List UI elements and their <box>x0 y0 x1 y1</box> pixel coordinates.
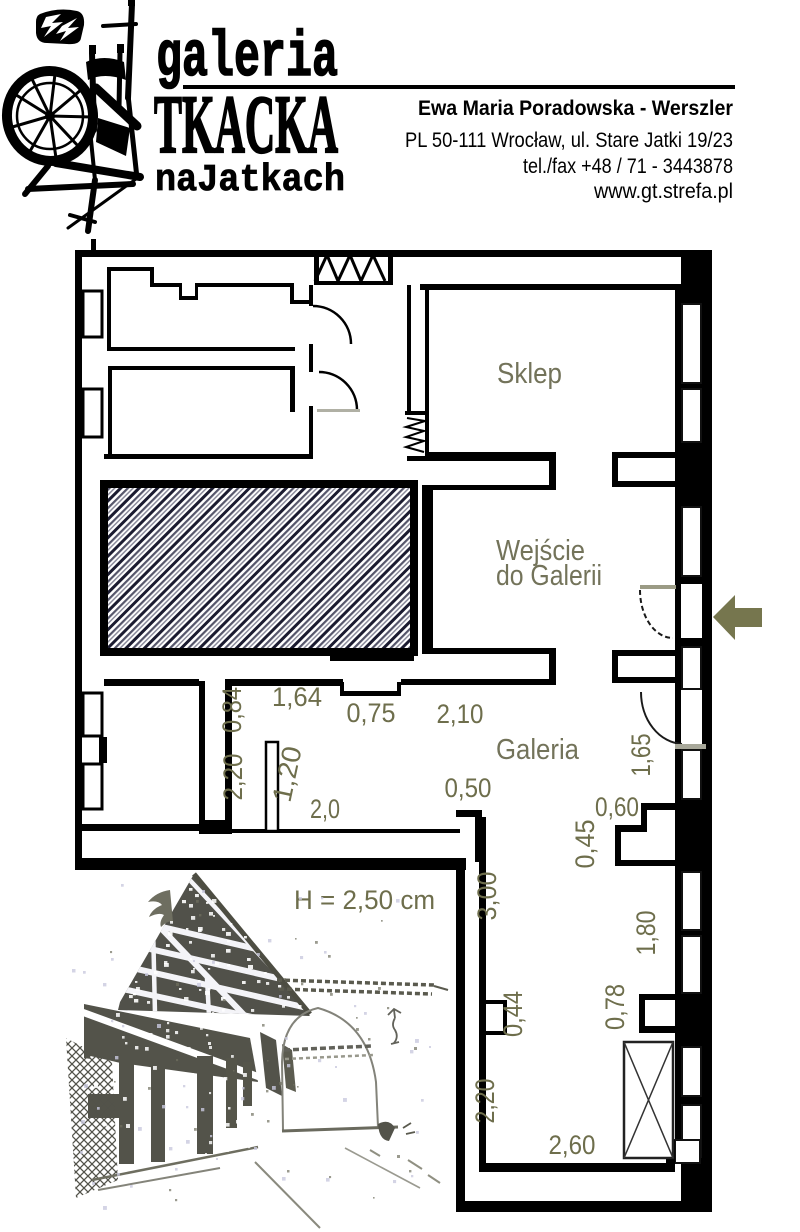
svg-text:1,65: 1,65 <box>626 734 656 777</box>
svg-text:0,75: 0,75 <box>347 698 396 728</box>
svg-text:PL 50-111 Wrocław, ul. Stare J: PL 50-111 Wrocław, ul. Stare Jatki 19/23 <box>405 129 733 152</box>
svg-text:Ewa Maria Poradowska - Werszle: Ewa Maria Poradowska - Werszler <box>418 96 734 120</box>
svg-text:0,78: 0,78 <box>600 984 630 1030</box>
svg-text:2,20: 2,20 <box>218 754 248 801</box>
svg-text:www.gt.strefa.pl: www.gt.strefa.pl <box>593 180 733 203</box>
svg-text:naJatkach: naJatkach <box>155 159 345 202</box>
svg-text:1,80: 1,80 <box>631 911 661 956</box>
svg-text:2,60: 2,60 <box>549 1130 596 1160</box>
svg-text:3,00: 3,00 <box>472 872 502 921</box>
svg-text:Sklep: Sklep <box>497 358 562 390</box>
svg-text:2,20: 2,20 <box>470 1079 500 1124</box>
svg-text:1,64: 1,64 <box>272 682 322 712</box>
svg-text:0,45: 0,45 <box>570 820 600 869</box>
svg-text:0,44: 0,44 <box>498 991 528 1037</box>
svg-text:H = 2,50 cm: H = 2,50 cm <box>294 885 435 915</box>
svg-text:0,84: 0,84 <box>217 687 247 733</box>
svg-text:0,50: 0,50 <box>445 773 492 803</box>
svg-text:0,60: 0,60 <box>595 792 639 822</box>
svg-text:tel./fax +48 / 71 - 3443878: tel./fax +48 / 71 - 3443878 <box>523 155 733 178</box>
svg-text:TKACKA: TKACKA <box>154 78 338 170</box>
svg-text:2,0: 2,0 <box>310 794 340 824</box>
svg-text:do Galerii: do Galerii <box>496 560 602 592</box>
svg-text:Galeria: Galeria <box>496 734 580 766</box>
svg-text:2,10: 2,10 <box>437 699 484 729</box>
